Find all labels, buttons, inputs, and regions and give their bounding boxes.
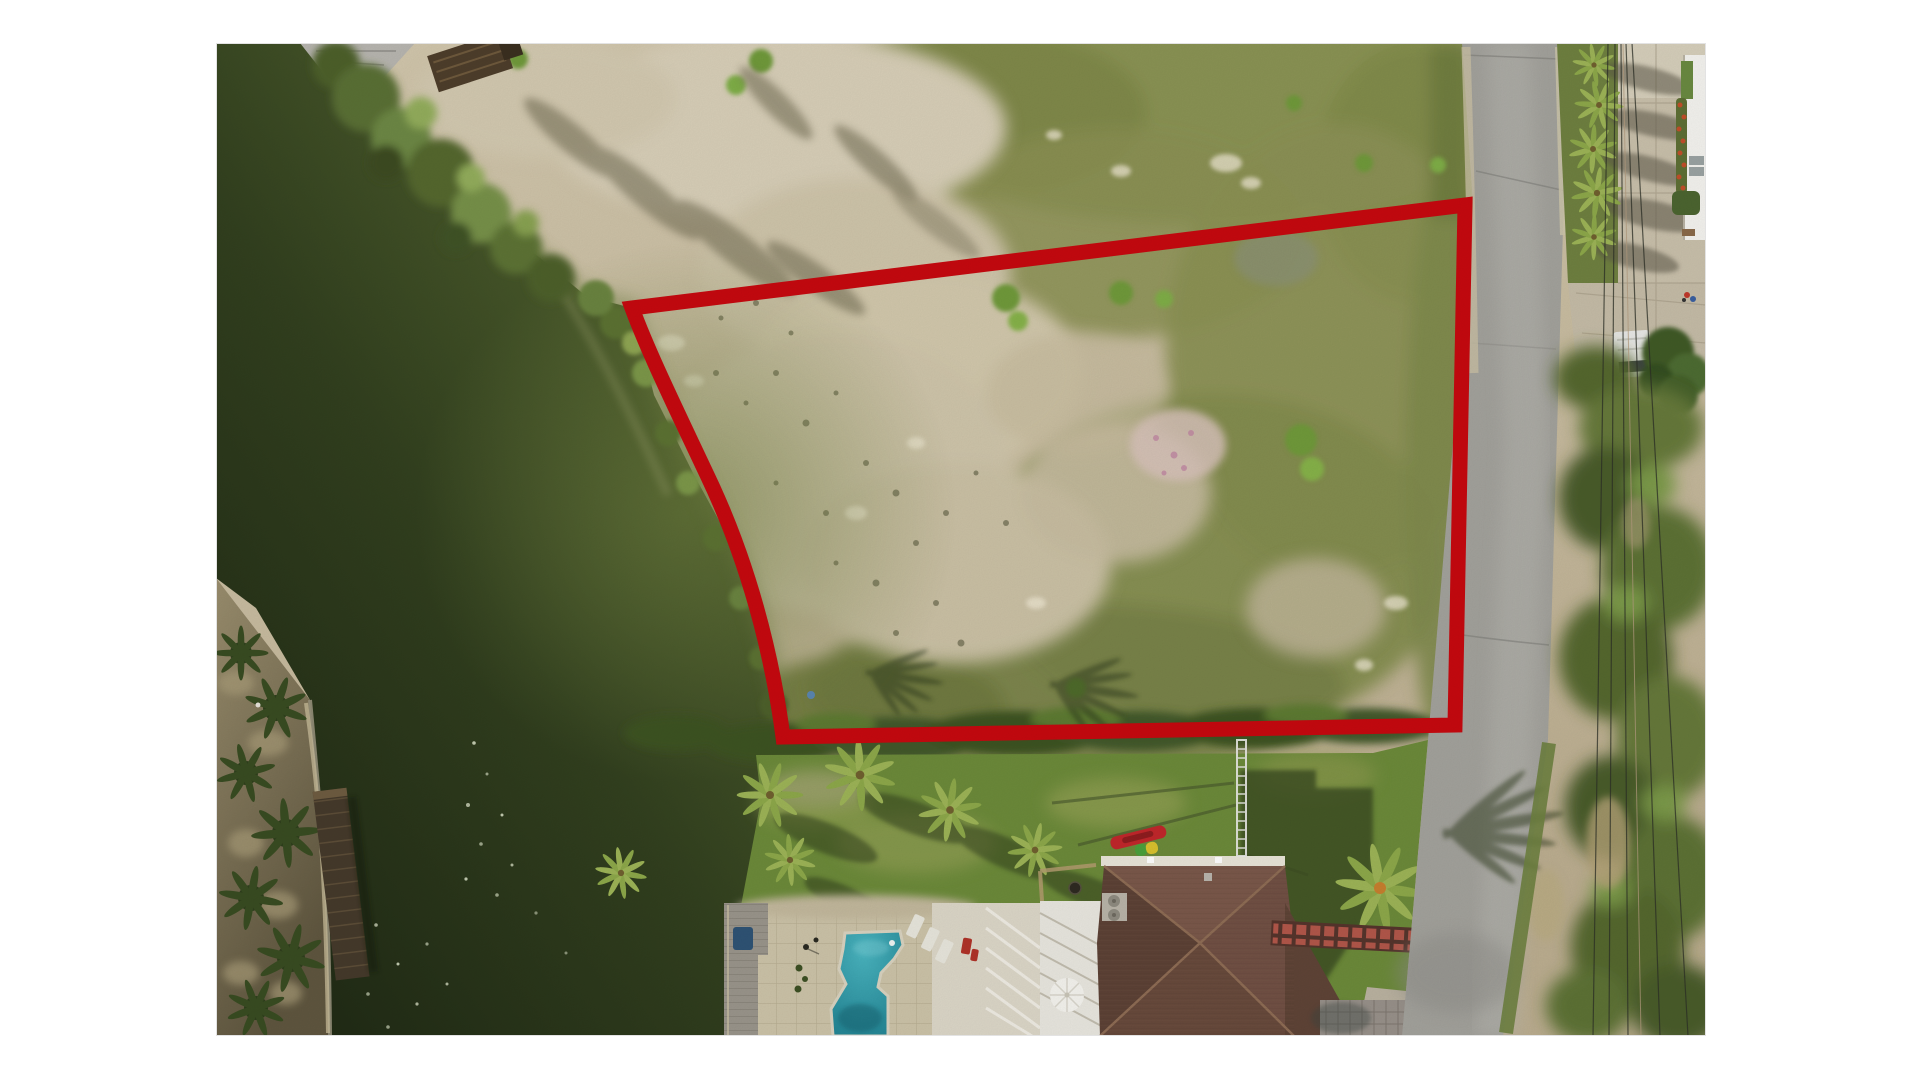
page xyxy=(0,0,1920,1080)
photo-grain xyxy=(216,43,1706,1036)
aerial-photo xyxy=(216,43,1706,1036)
